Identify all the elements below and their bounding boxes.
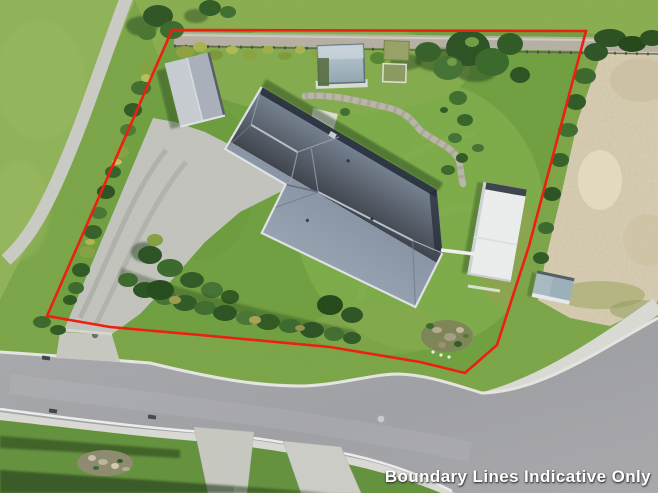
watermark-text: Boundary Lines Indicative Only [385,467,651,487]
aerial-photo-canvas [0,0,658,493]
photo-grain [0,0,658,493]
aerial-photo: Boundary Lines Indicative Only [0,0,658,493]
